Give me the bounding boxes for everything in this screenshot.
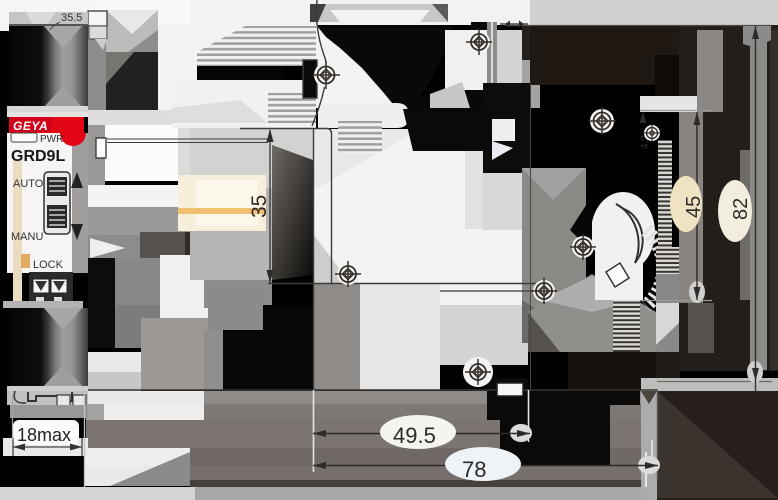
svg-text:49.5: 49.5 xyxy=(393,423,436,448)
svg-text:PWR: PWR xyxy=(40,134,63,145)
svg-text:GRD9L: GRD9L xyxy=(11,148,65,165)
svg-text:MANU: MANU xyxy=(11,231,43,243)
svg-text:AUTO: AUTO xyxy=(13,178,44,190)
svg-text:82: 82 xyxy=(730,198,752,220)
svg-text:35: 35 xyxy=(248,195,271,218)
svg-text:35.5: 35.5 xyxy=(61,12,82,24)
svg-text:18max: 18max xyxy=(17,425,71,445)
svg-text:45: 45 xyxy=(683,196,705,218)
svg-text:GEYA: GEYA xyxy=(13,119,48,133)
svg-text:78: 78 xyxy=(462,457,486,482)
svg-text:LOCK: LOCK xyxy=(33,259,64,271)
